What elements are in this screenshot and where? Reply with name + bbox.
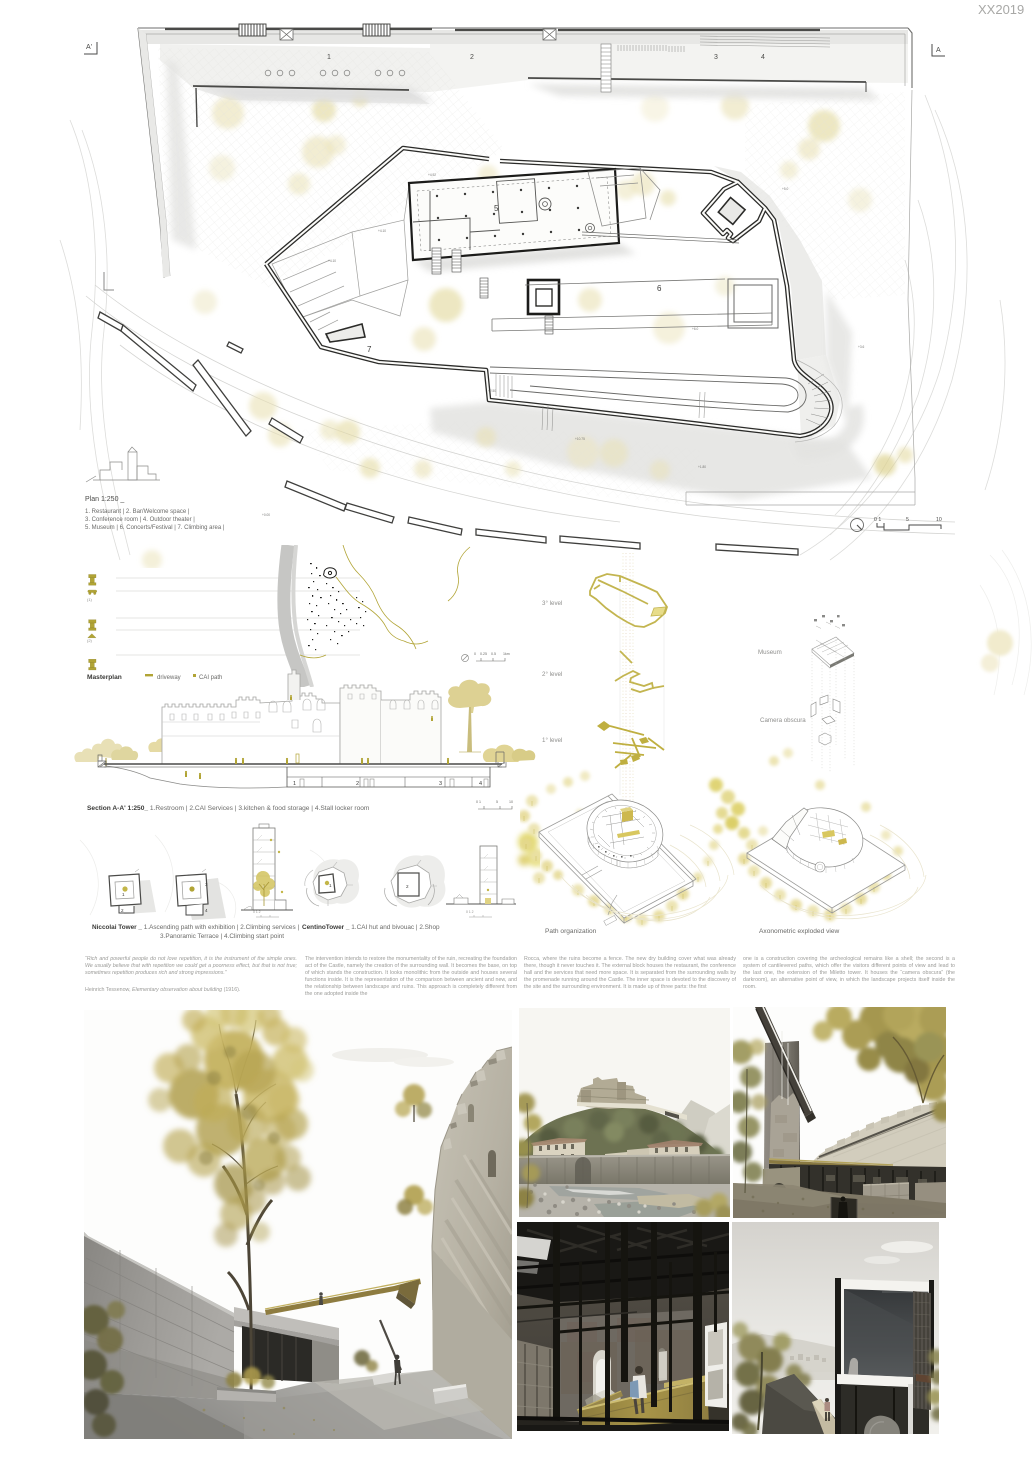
svg-text:0.5: 0.5 <box>491 652 496 656</box>
svg-text:3: 3 <box>205 882 208 887</box>
svg-text:+0.00: +0.00 <box>262 513 270 517</box>
svg-text:1: 1 <box>329 883 332 888</box>
svg-text:1: 1 <box>327 54 331 61</box>
svg-text:3° level: 3° level <box>542 600 562 607</box>
svg-text:+5.0: +5.0 <box>782 187 789 191</box>
svg-text:1. Restaurant | 2. Bar/Welco: 1. Restaurant | 2. Bar/Welcome space | <box>85 509 190 515</box>
svg-text:+4.10: +4.10 <box>378 229 386 233</box>
svg-text:5: 5 <box>494 204 499 213</box>
svg-text:Section A-A' 1:250_ 1.Restro: Section A-A' 1:250_ 1.Restroom | 2.CAI S… <box>87 805 370 812</box>
svg-text:10: 10 <box>936 517 942 523</box>
svg-text:5: 5 <box>496 800 498 804</box>
svg-text:2: 2 <box>121 908 124 913</box>
svg-text:(1): (1) <box>87 597 93 602</box>
svg-text:0 1 2: 0 1 2 <box>466 910 474 914</box>
svg-text:0 1: 0 1 <box>476 800 481 804</box>
svg-text:Museum: Museum <box>758 649 782 656</box>
svg-text:1: 1 <box>293 781 296 787</box>
svg-text:Plan 1:250 _: Plan 1:250 _ <box>85 496 124 503</box>
svg-text:0: 0 <box>474 652 476 656</box>
svg-text:Path organization: Path organization <box>545 928 597 935</box>
svg-text:3.Panoramic Terrace | 4.Climbi: 3.Panoramic Terrace | 4.Climbing start p… <box>160 933 284 940</box>
svg-text:5. Museum | 6. Concerts/Fes: 5. Museum | 6. Concerts/Festival | 7. Cl… <box>85 525 225 531</box>
svg-text:+6.0: +6.0 <box>692 327 699 331</box>
svg-text:7: 7 <box>367 345 372 354</box>
svg-text:A': A' <box>86 44 92 51</box>
svg-text:3: 3 <box>714 54 718 61</box>
svg-text:+4.10: +4.10 <box>328 259 336 263</box>
svg-text:1° level: 1° level <box>542 737 562 744</box>
svg-text:2° level: 2° level <box>542 671 562 678</box>
svg-text:+1.80: +1.80 <box>698 465 706 469</box>
svg-text:0.25: 0.25 <box>480 652 487 656</box>
svg-text:+2.50: +2.50 <box>488 389 496 393</box>
svg-text:10: 10 <box>509 800 513 804</box>
svg-text:5: 5 <box>906 517 909 523</box>
svg-text:3: 3 <box>439 781 442 787</box>
svg-text:1km: 1km <box>503 652 510 656</box>
svg-text:+4.92: +4.92 <box>428 173 436 177</box>
svg-text:2: 2 <box>356 781 359 787</box>
svg-text:2: 2 <box>470 54 474 61</box>
svg-text:6: 6 <box>657 284 662 293</box>
svg-text:+3.6: +3.6 <box>858 345 865 349</box>
svg-text:3. Conference room | 4. Outd: 3. Conference room | 4. Outdoor theater … <box>85 517 195 523</box>
svg-text:2: 2 <box>406 884 409 889</box>
svg-text:CentinoTower _ 1.CAI hut and: CentinoTower _ 1.CAI hut and bivouac | 2… <box>302 924 440 931</box>
svg-text:4: 4 <box>479 781 482 787</box>
svg-text:Camera obscura: Camera obscura <box>760 717 806 724</box>
svg-text:0 1: 0 1 <box>874 517 881 523</box>
svg-text:(2): (2) <box>87 638 93 643</box>
svg-text:Axonometric exploded view: Axonometric exploded view <box>759 928 840 935</box>
svg-text:A: A <box>936 47 941 54</box>
svg-text:1: 1 <box>122 892 125 897</box>
svg-text:4: 4 <box>761 54 765 61</box>
svg-text:4: 4 <box>205 908 208 913</box>
svg-text:+10.75: +10.75 <box>575 437 585 441</box>
svg-text:0 1 2: 0 1 2 <box>253 910 261 914</box>
svg-text:Niccolai Tower _ 1.Ascending p: Niccolai Tower _ 1.Ascending path with e… <box>92 924 299 931</box>
